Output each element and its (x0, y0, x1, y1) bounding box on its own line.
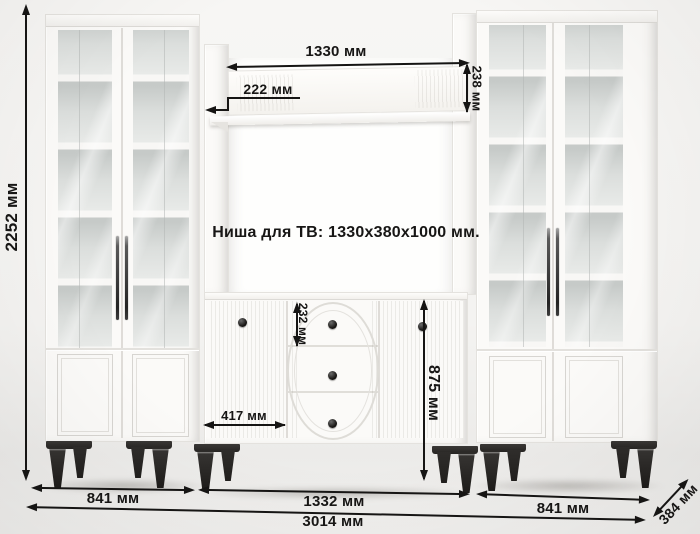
dim-line-overall-height (25, 7, 27, 477)
tv-niche-note: Ниша для ТВ: 1330x380x1000 мм. (186, 224, 506, 242)
vignette-overlay (0, 0, 700, 534)
dim-label-shelf-length: 1330 мм (280, 43, 392, 60)
arrowhead-left (205, 106, 216, 114)
dim-label-shelf-depth: 222 мм (225, 81, 311, 97)
arrowhead-up (420, 299, 428, 310)
dim-label-overall-width: 3014 мм (288, 513, 378, 530)
dim-label-chest-height: 875 мм (424, 357, 442, 429)
dim-leader-shelf-depth (228, 97, 300, 99)
dim-label-overall-height: 2252 мм (2, 157, 22, 277)
arrowhead-down (420, 470, 428, 481)
arrowhead-up (22, 4, 30, 15)
dim-line-door-width (205, 424, 285, 426)
arrowhead-down (22, 470, 30, 481)
dim-label-drawer-height: 232 мм (296, 295, 310, 353)
furniture-dimension-diagram: 2252 мм 1330 мм 222 мм 238 мм Ниша для Т… (0, 0, 700, 534)
dim-label-shelf-height: 238 мм (470, 58, 485, 120)
dim-label-door-width: 417 мм (202, 408, 286, 423)
